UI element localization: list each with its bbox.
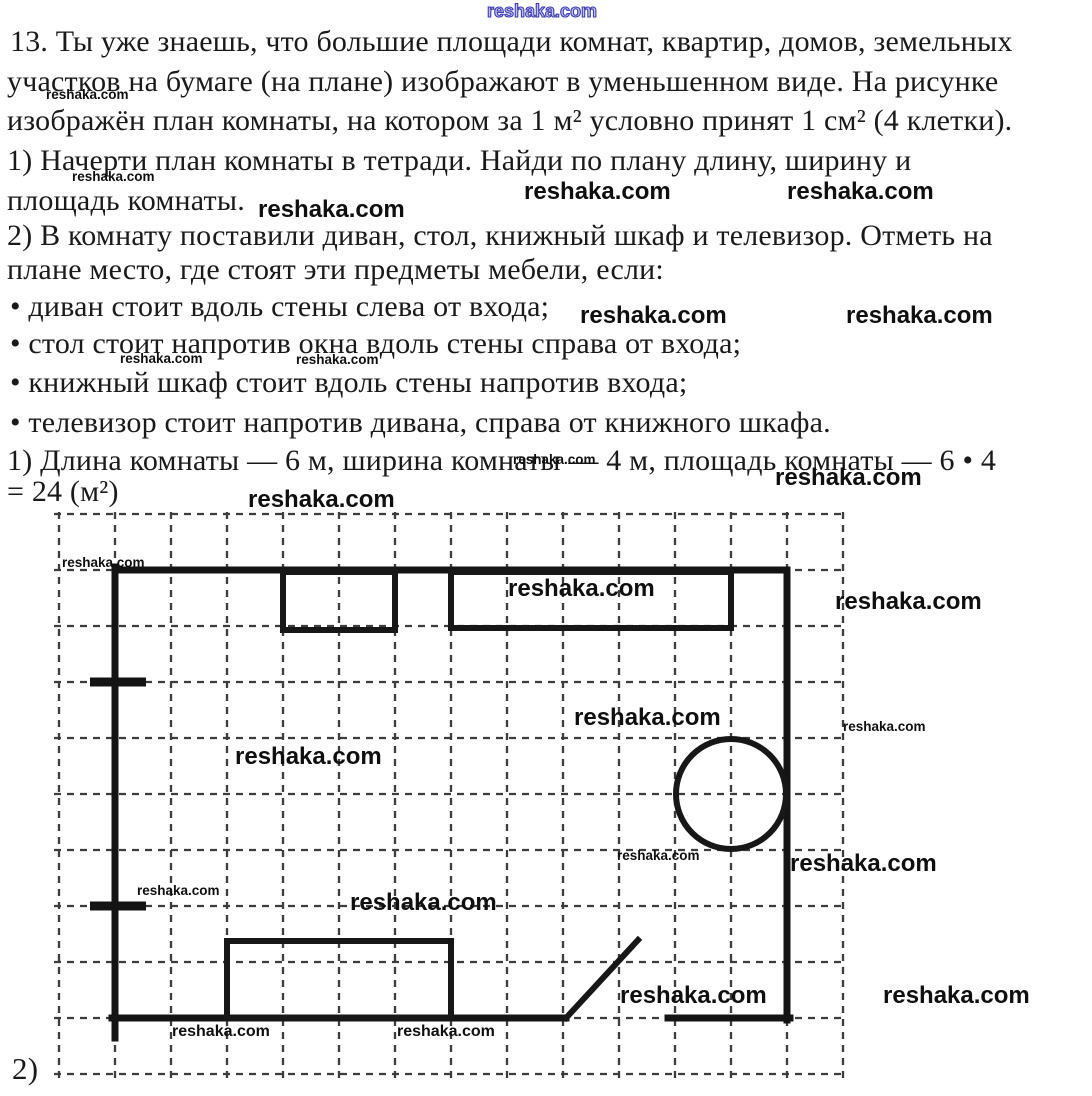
site-watermark: reshaka.com: [120, 352, 203, 366]
site-watermark: reshaka.com: [620, 984, 767, 1008]
site-watermark: reshaka.com: [137, 884, 220, 898]
part2-label: 2): [12, 1053, 38, 1085]
room-plan-drawing: [0, 0, 1092, 1096]
site-watermark: reshaka.com: [46, 88, 129, 102]
site-watermark: reshaka.com: [235, 745, 382, 769]
site-watermark: reshaka.com: [72, 170, 155, 184]
document-page: 13. Ты уже знаешь, что большие площади к…: [0, 0, 1092, 1096]
site-watermark: reshaka.com: [513, 453, 596, 467]
site-watermark-blue: reshaka.com: [487, 2, 597, 20]
site-watermark: reshaka.com: [835, 590, 982, 614]
site-watermark: reshaka.com: [846, 304, 993, 328]
site-watermark: reshaka.com: [775, 466, 922, 490]
site-watermark: reshaka.com: [248, 488, 395, 512]
site-watermark: reshaka.com: [790, 852, 937, 876]
site-watermark: reshaka.com: [787, 180, 934, 204]
site-watermark: reshaka.com: [617, 849, 700, 863]
site-watermark: reshaka.com: [524, 180, 671, 204]
site-watermark: reshaka.com: [296, 353, 379, 367]
site-watermark: reshaka.com: [62, 556, 145, 570]
site-watermark: reshaka.com: [397, 1024, 495, 1040]
site-watermark: reshaka.com: [580, 304, 727, 328]
site-watermark: reshaka.com: [258, 198, 405, 222]
site-watermark: reshaka.com: [574, 706, 721, 730]
site-watermark: reshaka.com: [843, 720, 926, 734]
site-watermark: reshaka.com: [172, 1024, 270, 1040]
site-watermark: reshaka.com: [508, 577, 655, 601]
site-watermark: reshaka.com: [883, 984, 1030, 1008]
site-watermark: reshaka.com: [350, 891, 497, 915]
